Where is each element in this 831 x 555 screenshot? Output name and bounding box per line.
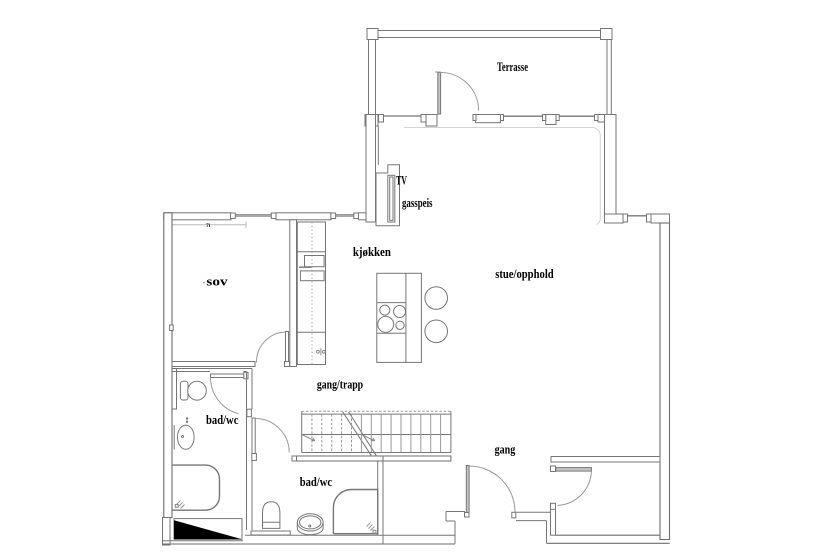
svg-text:Terrasse: Terrasse xyxy=(497,60,528,74)
svg-text:kjøkken: kjøkken xyxy=(353,245,391,259)
svg-text:gasspeis: gasspeis xyxy=(402,196,433,210)
svg-text:gang: gang xyxy=(495,443,516,457)
svg-text:stue/opphold: stue/opphold xyxy=(495,267,554,281)
svg-text:sov: sov xyxy=(206,274,228,289)
svg-text:bad/wc: bad/wc xyxy=(300,475,333,489)
svg-text:7i: 7i xyxy=(206,223,211,229)
svg-text:TV: TV xyxy=(396,174,407,188)
svg-text:bad/wc: bad/wc xyxy=(206,413,239,427)
svg-text:gang/trapp: gang/trapp xyxy=(317,377,363,391)
